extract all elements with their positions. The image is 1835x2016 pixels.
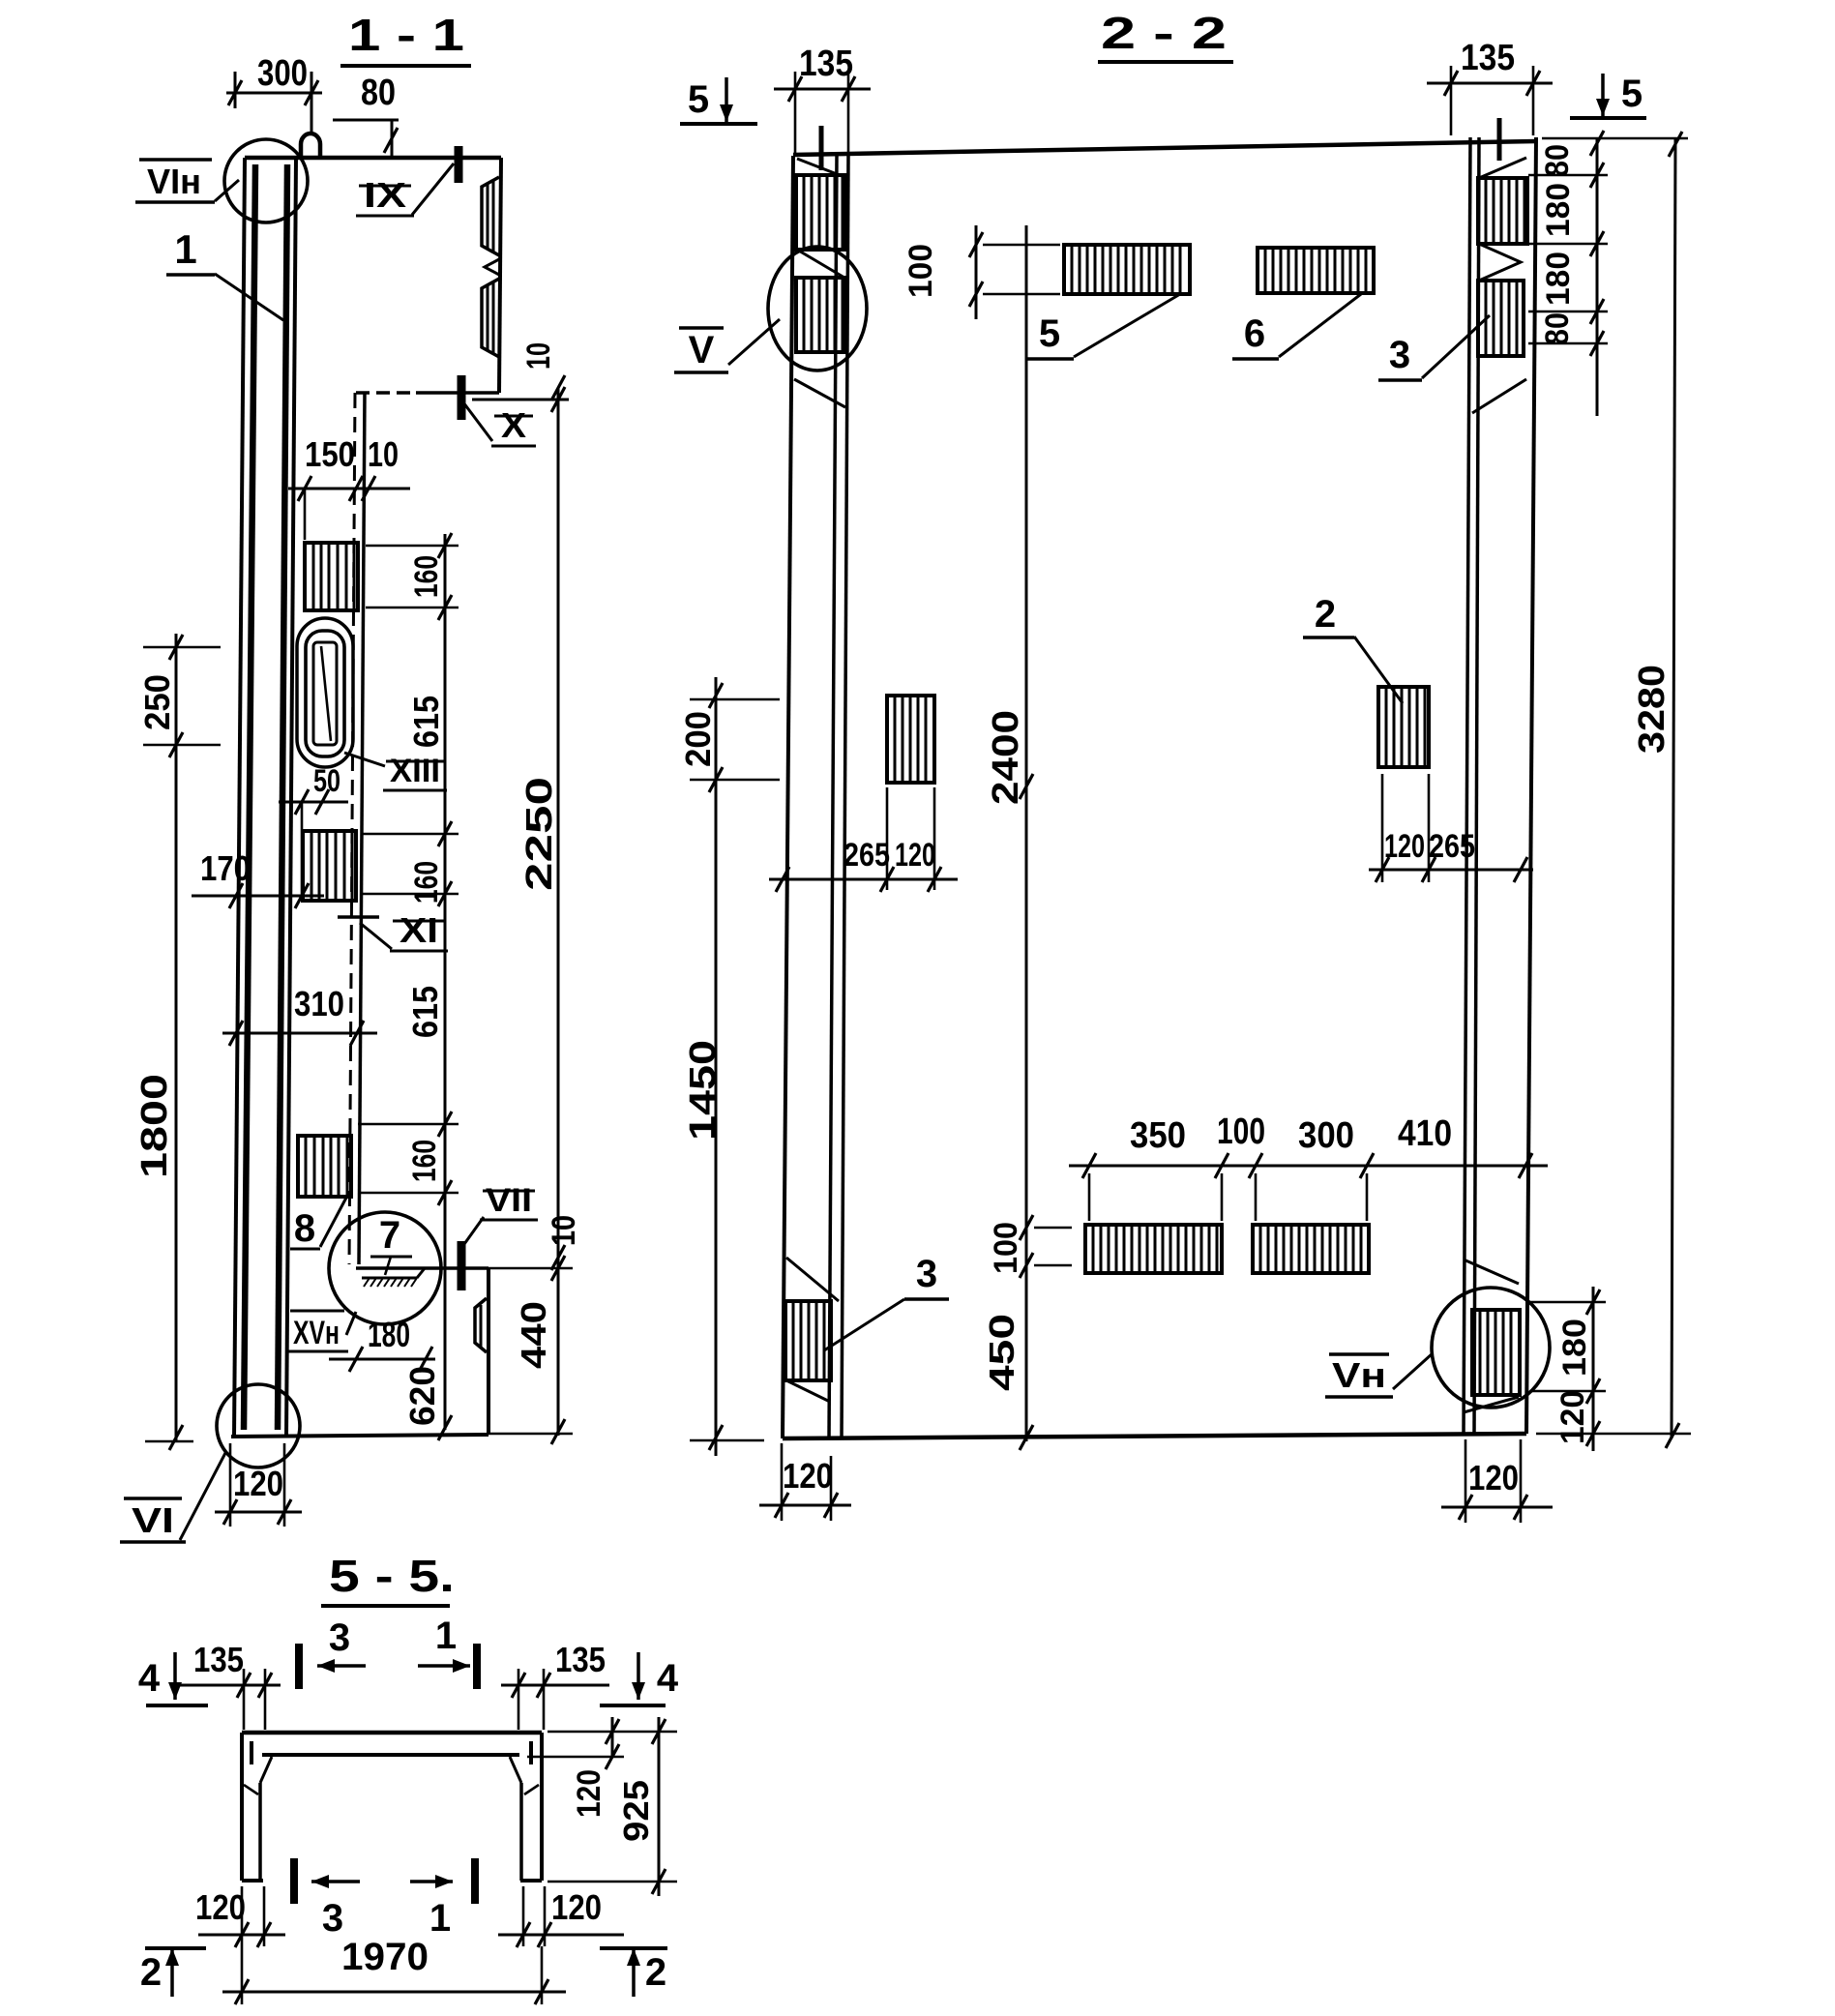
svg-text:120: 120 [233, 1464, 283, 1503]
svg-text:4: 4 [138, 1657, 161, 1700]
svg-text:440: 440 [514, 1301, 553, 1369]
svg-text:1: 1 [435, 1615, 457, 1657]
svg-text:6: 6 [1244, 312, 1265, 355]
svg-text:2 - 2: 2 - 2 [1101, 8, 1227, 58]
svg-text:VI: VI [132, 1500, 174, 1540]
svg-text:135: 135 [193, 1640, 244, 1679]
svg-text:120: 120 [1384, 828, 1425, 865]
svg-text:1450: 1450 [683, 1040, 724, 1141]
svg-text:2: 2 [140, 1951, 162, 1994]
svg-text:5: 5 [688, 78, 709, 121]
svg-text:XIII: XIII [390, 753, 440, 789]
svg-text:180: 180 [1556, 1319, 1593, 1377]
svg-text:8: 8 [294, 1207, 315, 1250]
svg-text:120: 120 [783, 1456, 833, 1496]
svg-text:120: 120 [1554, 1390, 1591, 1444]
svg-text:3: 3 [329, 1616, 350, 1659]
svg-text:1: 1 [174, 226, 196, 272]
svg-text:135: 135 [1461, 38, 1515, 78]
svg-text:1: 1 [429, 1897, 451, 1940]
svg-text:X: X [501, 405, 526, 445]
svg-text:3: 3 [1389, 334, 1410, 376]
svg-text:150: 150 [305, 434, 355, 474]
svg-text:100: 100 [903, 244, 939, 298]
svg-text:V: V [689, 329, 715, 371]
svg-text:300: 300 [257, 53, 308, 94]
svg-text:1970: 1970 [341, 1936, 429, 1978]
svg-text:620: 620 [402, 1366, 442, 1426]
svg-text:120: 120 [195, 1887, 246, 1927]
svg-text:135: 135 [799, 44, 853, 84]
svg-text:250: 250 [137, 674, 177, 730]
svg-text:120: 120 [1468, 1458, 1519, 1497]
svg-text:VIн: VIн [147, 162, 201, 201]
svg-text:80: 80 [361, 73, 396, 113]
svg-text:VII: VII [486, 1182, 532, 1219]
svg-text:2: 2 [645, 1951, 666, 1994]
svg-text:615: 615 [406, 696, 446, 748]
svg-text:160: 160 [408, 555, 445, 598]
svg-text:5: 5 [1621, 73, 1643, 115]
svg-text:100: 100 [1217, 1112, 1265, 1152]
svg-text:3: 3 [916, 1253, 937, 1295]
svg-text:300: 300 [1298, 1115, 1354, 1156]
svg-text:160: 160 [408, 861, 445, 904]
svg-text:3: 3 [322, 1897, 343, 1940]
svg-text:7: 7 [379, 1214, 400, 1257]
svg-text:310: 310 [294, 984, 344, 1023]
svg-text:925: 925 [616, 1780, 656, 1842]
svg-text:XVн: XVн [293, 1315, 340, 1351]
svg-text:615: 615 [405, 986, 445, 1038]
svg-text:80: 80 [1539, 312, 1576, 345]
svg-text:3280: 3280 [1632, 665, 1672, 754]
svg-text:120: 120 [571, 1769, 607, 1818]
svg-text:4: 4 [657, 1657, 679, 1700]
svg-text:80: 80 [1539, 144, 1576, 177]
svg-text:Vн: Vн [1332, 1355, 1386, 1395]
svg-text:IX: IX [364, 175, 406, 215]
svg-text:410: 410 [1398, 1113, 1452, 1154]
svg-text:10: 10 [368, 434, 399, 474]
svg-text:180: 180 [1540, 252, 1577, 306]
svg-text:100: 100 [988, 1222, 1024, 1274]
svg-text:10: 10 [520, 342, 557, 370]
svg-text:2250: 2250 [519, 777, 560, 891]
svg-text:2: 2 [1315, 593, 1336, 636]
svg-text:200: 200 [678, 711, 718, 767]
svg-text:120: 120 [551, 1887, 602, 1927]
svg-text:450: 450 [982, 1314, 1021, 1391]
svg-text:180: 180 [368, 1315, 410, 1354]
svg-text:120: 120 [895, 837, 935, 874]
svg-text:2400: 2400 [986, 710, 1026, 805]
svg-text:180: 180 [1540, 183, 1577, 237]
svg-text:265: 265 [844, 837, 890, 874]
svg-text:170: 170 [200, 848, 251, 888]
svg-text:1800: 1800 [134, 1074, 175, 1178]
svg-text:160: 160 [406, 1140, 443, 1182]
svg-text:350: 350 [1130, 1115, 1186, 1156]
svg-text:XI: XI [400, 910, 438, 950]
svg-text:10: 10 [546, 1215, 582, 1246]
svg-text:5 - 5.: 5 - 5. [329, 1551, 455, 1601]
svg-text:5: 5 [1039, 312, 1060, 355]
svg-text:1 - 1: 1 - 1 [348, 10, 464, 60]
svg-text:135: 135 [555, 1640, 606, 1679]
